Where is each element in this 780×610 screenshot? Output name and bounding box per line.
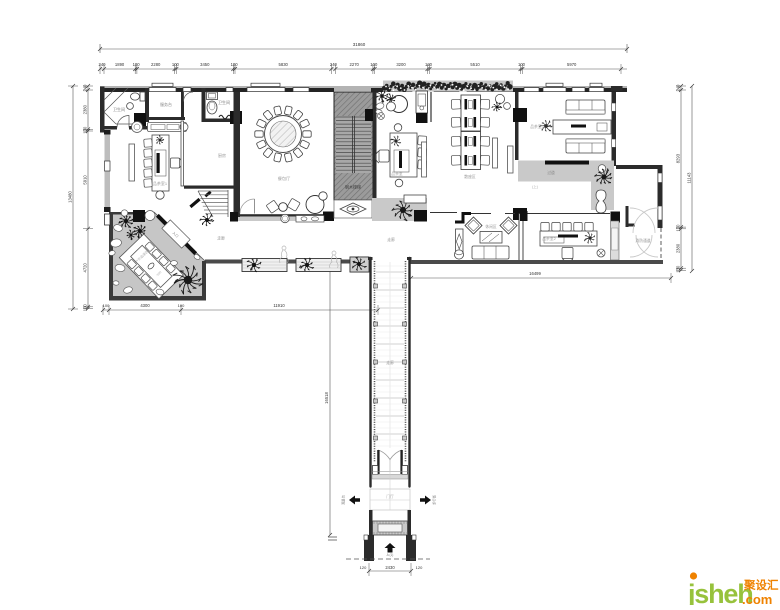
svg-text:厨房: 厨房 — [218, 152, 226, 158]
svg-text:2380: 2380 — [676, 243, 681, 253]
svg-text:步行街: 步行街 — [432, 494, 437, 504]
svg-text:8293: 8293 — [676, 153, 681, 163]
svg-text:100: 100 — [83, 126, 88, 134]
svg-text:2380: 2380 — [83, 104, 88, 114]
svg-text:门厅: 门厅 — [386, 494, 394, 499]
svg-text:240: 240 — [676, 84, 681, 92]
svg-text:走廊: 走廊 — [386, 360, 394, 365]
svg-text:4720: 4720 — [83, 262, 88, 272]
svg-text:100: 100 — [370, 62, 378, 67]
svg-text:走廊: 走廊 — [217, 236, 225, 241]
svg-text:120: 120 — [416, 565, 423, 570]
svg-text:2430: 2430 — [385, 565, 395, 570]
svg-text:13480: 13480 — [68, 191, 73, 203]
svg-text:1890: 1890 — [115, 62, 125, 67]
svg-text:11910: 11910 — [273, 303, 285, 308]
svg-text:钢木楼梯: 钢木楼梯 — [345, 184, 361, 190]
svg-text:2280: 2280 — [151, 62, 161, 67]
svg-text:130: 130 — [676, 265, 681, 273]
svg-text:4300: 4300 — [140, 303, 150, 308]
svg-text:100: 100 — [103, 303, 110, 308]
svg-text:100: 100 — [172, 62, 180, 67]
svg-text:100: 100 — [676, 224, 681, 232]
svg-text:3200: 3200 — [396, 62, 406, 67]
svg-text:100: 100 — [83, 304, 88, 312]
svg-text:240: 240 — [330, 62, 338, 67]
svg-text:卫生间: 卫生间 — [113, 106, 125, 112]
svg-text:品茶室: 品茶室 — [391, 171, 403, 176]
svg-text:品茶室1: 品茶室1 — [153, 180, 168, 186]
svg-text:过道: 过道 — [547, 170, 555, 175]
svg-text:观景台: 观景台 — [341, 495, 346, 505]
svg-text:240: 240 — [83, 84, 88, 92]
svg-text:品茶室2: 品茶室2 — [542, 236, 556, 241]
svg-text:100: 100 — [231, 62, 239, 67]
svg-text:5970: 5970 — [567, 62, 577, 67]
svg-text:100: 100 — [178, 303, 185, 308]
svg-text:品茶室3: 品茶室3 — [530, 124, 544, 129]
svg-text:11143: 11143 — [687, 172, 692, 184]
svg-text:120: 120 — [360, 565, 367, 570]
svg-text:餐包厅: 餐包厅 — [278, 175, 291, 182]
svg-text:120: 120 — [425, 62, 433, 67]
svg-text:16518: 16518 — [324, 392, 329, 404]
svg-text:100: 100 — [518, 62, 526, 67]
svg-text:休闲区: 休闲区 — [485, 224, 497, 229]
svg-text:聚设汇: 聚设汇 — [743, 578, 779, 592]
svg-text:服务台: 服务台 — [160, 101, 172, 107]
svg-text:5910: 5910 — [83, 175, 88, 185]
svg-text:240: 240 — [99, 62, 107, 67]
svg-text:(上): (上) — [532, 184, 538, 189]
svg-text:.com: .com — [742, 592, 772, 605]
svg-text:卫生间: 卫生间 — [218, 99, 230, 105]
svg-text:散座区: 散座区 — [464, 174, 476, 179]
svg-text:消防通道: 消防通道 — [635, 238, 650, 243]
svg-text:5830: 5830 — [279, 62, 289, 67]
svg-text:2270: 2270 — [350, 62, 360, 67]
svg-text:100: 100 — [133, 62, 141, 67]
svg-text:16499: 16499 — [529, 271, 541, 276]
svg-text:A (1): A (1) — [387, 553, 394, 557]
svg-text:走廊: 走廊 — [387, 237, 395, 242]
svg-text:5510: 5510 — [470, 62, 480, 67]
svg-text:31860: 31860 — [353, 42, 366, 47]
svg-text:3450: 3450 — [200, 62, 210, 67]
